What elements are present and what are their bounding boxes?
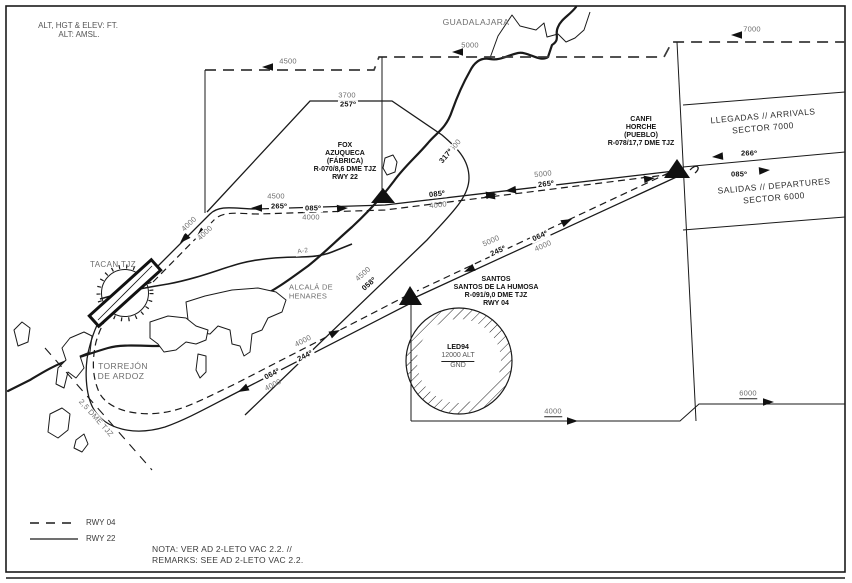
bearing-085-canfi: 085º — [729, 170, 749, 178]
altitude-6000: 6000 — [739, 389, 757, 399]
bearing-265-west: 265º — [269, 202, 289, 210]
fox-name: FOX — [314, 142, 377, 150]
altitude-7000-northeast: 7000 — [743, 25, 761, 33]
legend-rwy04-label: RWY 04 — [86, 518, 116, 527]
santos-name: SANTOS — [454, 276, 539, 284]
altitude-5000-mid: 5000 — [534, 169, 552, 178]
bearing-266: 266º — [739, 149, 759, 157]
waypoint-canfi-block: CANFI HORCHE (PUEBLO) R-078/17,7 DME TJZ — [608, 116, 675, 148]
units-note-line2: ALT: AMSL. — [58, 31, 99, 39]
tacan-label: TACAN TJZ — [90, 261, 136, 269]
legend-rwy22-label: RWY 22 — [86, 534, 116, 543]
bearing-085-east: 085º — [427, 189, 448, 199]
city-alcala-line1: ALCALÁ DE — [289, 283, 333, 291]
direction-arrows — [177, 31, 774, 425]
altitude-4500-west: 4500 — [267, 192, 285, 200]
chart-canvas — [0, 0, 852, 583]
altitude-4000-east: 4000 — [429, 200, 447, 209]
restricted-area-name: LED94 — [441, 344, 474, 352]
altitude-4000-west: 4000 — [302, 213, 320, 221]
restricted-area-upper-limit: 12000 ALT — [441, 352, 474, 362]
note-line2: REMARKS: SEE AD 2-LETO VAC 2.2. — [152, 555, 303, 565]
city-alcala-line2: HENARES — [289, 292, 327, 300]
sector-boundary-dashed — [205, 42, 845, 70]
restricted-area-block: LED94 12000 ALT GND — [441, 344, 474, 370]
altitude-4500-northwest: 4500 — [279, 57, 297, 65]
units-note-line1: ALT, HGT & ELEV: FT. — [38, 22, 118, 30]
fox-city: AZUQUECA — [314, 150, 377, 158]
canfi-city: HORCHE — [608, 124, 675, 132]
fox-radial: R-070/8,6 DME TJZ — [314, 166, 377, 174]
canfi-name: CANFI — [608, 116, 675, 124]
canfi-radial: R-078/17,7 DME TJZ — [608, 140, 675, 148]
canfi-alias: (PUEBLO) — [608, 132, 675, 140]
altitude-3700: 3700 — [336, 91, 358, 99]
santos-city: SANTOS DE LA HUMOSA — [454, 284, 539, 292]
bearing-257: 257º — [338, 100, 358, 108]
altitude-5000-north: 5000 — [461, 41, 479, 49]
waypoint-fox-block: FOX AZUQUECA (FÁBRICA) R-070/8,6 DME TJZ… — [314, 142, 377, 182]
bearing-265-mid: 265º — [536, 179, 557, 189]
waypoint-santos-block: SANTOS SANTOS DE LA HUMOSA R-091/9,0 DME… — [454, 276, 539, 308]
visual-approach-chart: ALT, HGT & ELEV: FT. ALT: AMSL. GUADALAJ… — [0, 0, 852, 583]
fox-runway: RWY 22 — [314, 174, 377, 182]
altitude-4000-bottom: 4000 — [544, 407, 562, 417]
santos-runway: RWY 04 — [454, 300, 539, 308]
city-torrejon-line1: TORREJÓN — [98, 362, 148, 371]
note-line1: NOTA: VER AD 2-LETO VAC 2.2. // — [152, 544, 292, 554]
canfi-triangle-icon — [664, 159, 690, 178]
fox-triangle-icon — [371, 188, 395, 203]
city-torrejon-line2: DE ARDOZ — [98, 372, 145, 381]
restricted-area-lower-limit: GND — [441, 362, 474, 370]
rwy22-procedure-lines — [86, 101, 698, 431]
fox-alias: (FÁBRICA) — [314, 158, 377, 166]
santos-radial: R-091/9,0 DME TJZ — [454, 292, 539, 300]
bearing-085-west: 085º — [303, 204, 323, 212]
legend-line-samples — [30, 523, 78, 539]
city-guadalajara: GUADALAJARA — [443, 18, 510, 27]
